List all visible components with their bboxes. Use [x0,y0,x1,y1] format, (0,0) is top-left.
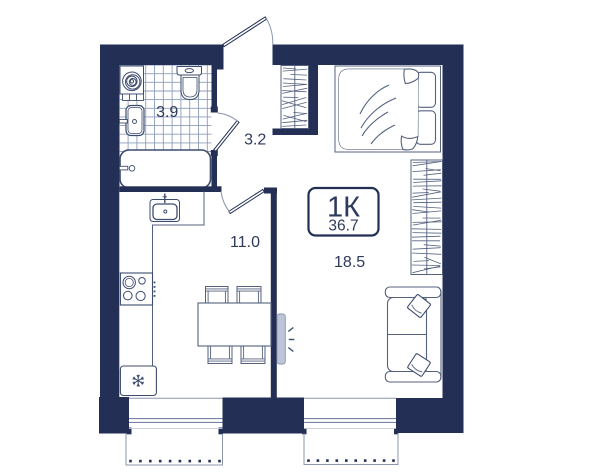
svg-text:11.0: 11.0 [230,234,260,251]
svg-text:36.7: 36.7 [328,217,358,234]
svg-text:3.2: 3.2 [244,131,266,148]
svg-text:18.5: 18.5 [334,254,365,271]
svg-text:3.9: 3.9 [156,104,178,121]
